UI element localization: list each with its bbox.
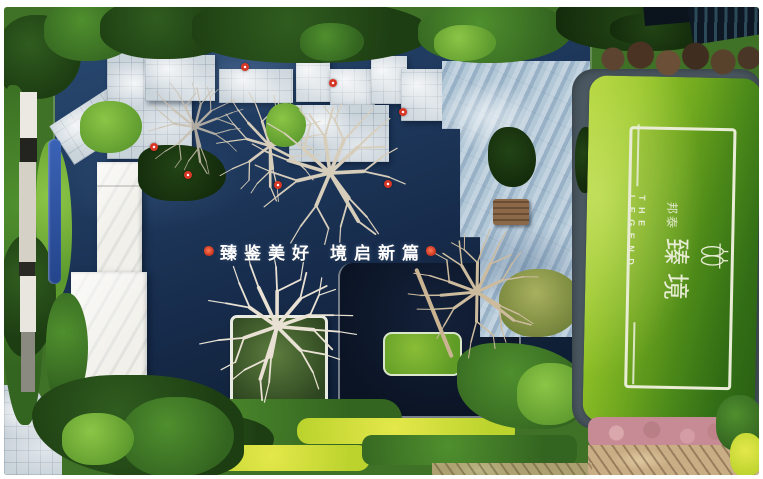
yellow-flower-band (730, 433, 759, 475)
garden-wall (21, 332, 35, 392)
garden-path (432, 463, 592, 475)
garden-wall (20, 138, 37, 162)
garden-wall (19, 162, 36, 262)
red-float-marker (329, 79, 337, 87)
white-deck-upper (97, 162, 142, 276)
red-float-marker (274, 181, 282, 189)
brand-sign: 邦泰 臻境 THE LEGEND (623, 124, 732, 386)
sign-rule (632, 323, 635, 385)
hedge-band (362, 435, 577, 465)
bottom-left-tree (122, 397, 234, 475)
garden-wall (20, 276, 36, 332)
red-float-marker (150, 143, 158, 151)
blue-feature-wall (48, 139, 61, 284)
slogan-part1: 臻鉴美好 (220, 239, 316, 264)
slogan-part2: 境启新篇 (330, 239, 426, 264)
photo-frame: 邦泰 臻境 THE LEGEND (0, 0, 763, 479)
sign-rule (637, 124, 640, 186)
red-float-marker (184, 171, 192, 179)
garden-wall (19, 262, 35, 276)
brand-english-line: THE LEGEND (623, 124, 648, 384)
brand-name: 臻境 (658, 238, 698, 309)
brand-chinese-line: 邦泰 臻境 (658, 202, 699, 309)
aerial-photo: 邦泰 臻境 THE LEGEND (4, 7, 759, 475)
brand-prefix: 邦泰 (659, 202, 681, 230)
red-float-marker (384, 180, 392, 188)
red-flower-icon (426, 246, 436, 256)
brand-english: THE LEGEND (625, 195, 647, 314)
brand-emblem-icon (699, 236, 730, 277)
deck-seam (97, 185, 142, 187)
garden-wall (20, 92, 37, 138)
red-flower-icon (204, 246, 214, 256)
shrub-row (600, 35, 759, 83)
red-float-marker (399, 108, 407, 116)
pool-slogan: 臻鉴美好 境启新篇 (204, 239, 436, 263)
green-lawn: 邦泰 臻境 THE LEGEND (582, 75, 759, 425)
red-float-marker (241, 63, 249, 71)
